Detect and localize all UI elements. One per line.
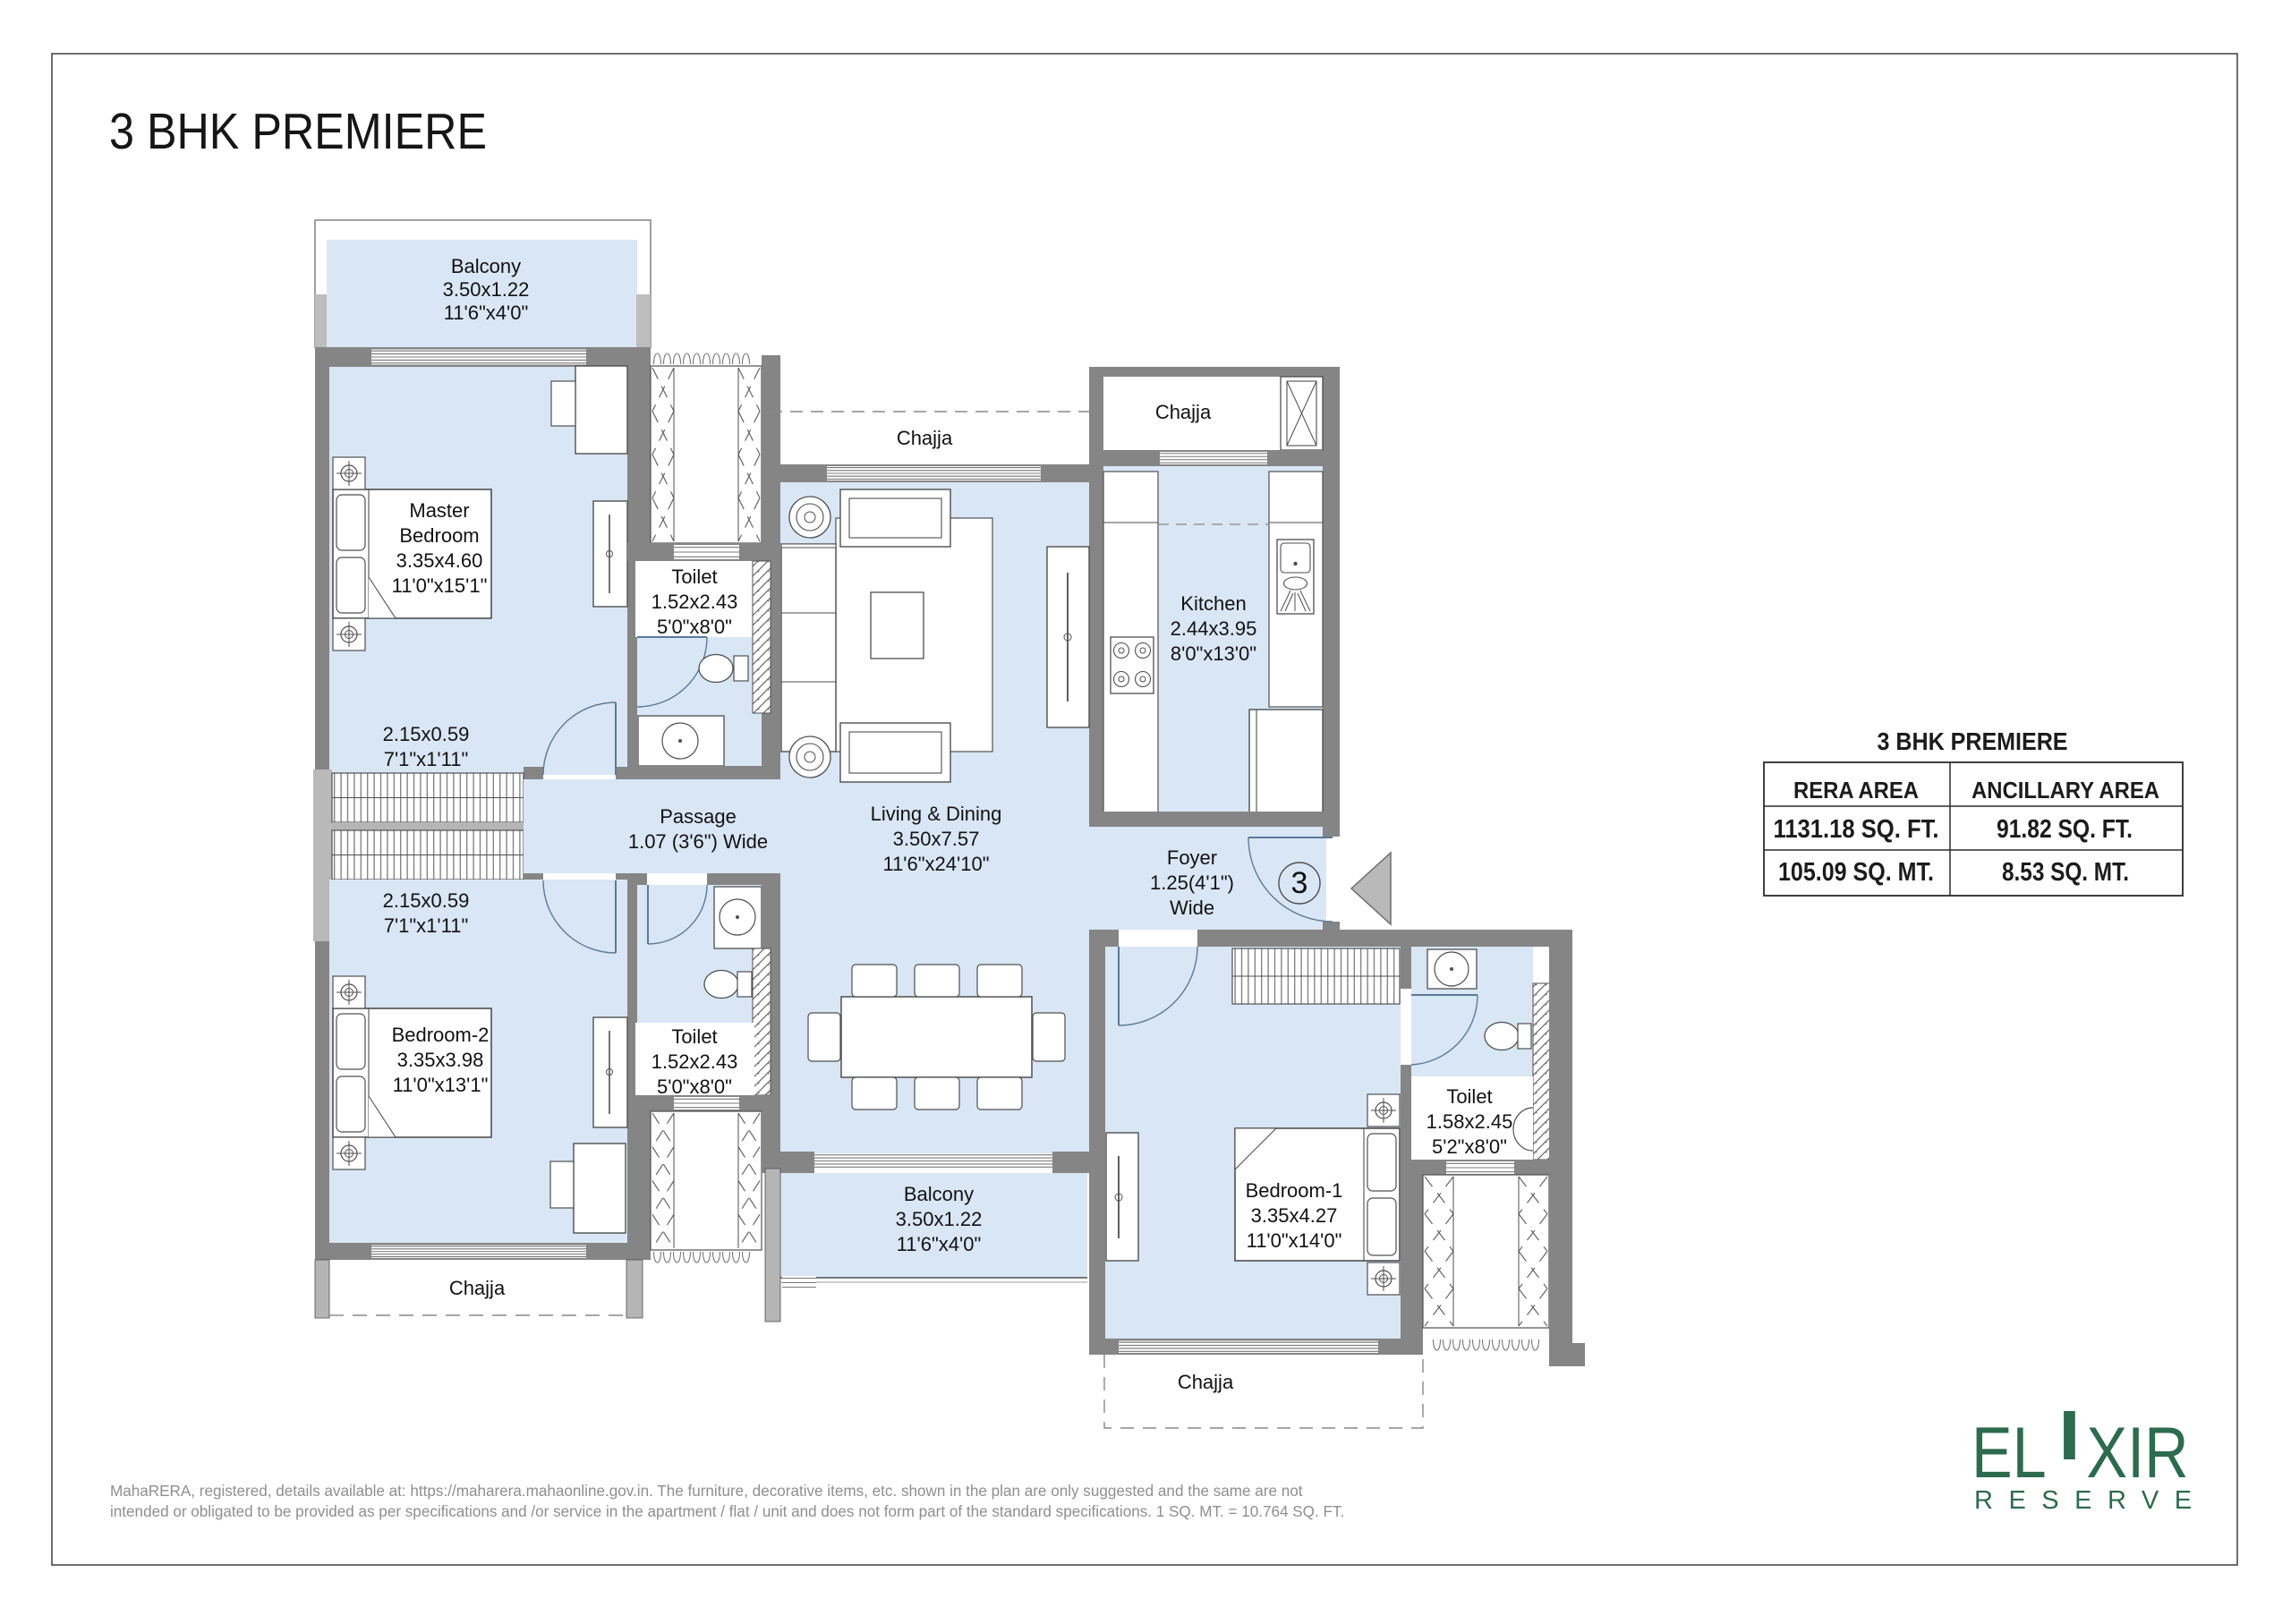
svg-text:RERA AREA: RERA AREA — [1793, 777, 1919, 803]
svg-text:1.52x2.43: 1.52x2.43 — [652, 1050, 738, 1073]
svg-text:2.44x3.95: 2.44x3.95 — [1171, 617, 1257, 640]
svg-text:5'2"x8'0": 5'2"x8'0" — [1432, 1135, 1507, 1158]
svg-text:Balcony: Balcony — [904, 1183, 974, 1205]
svg-text:5'0"x8'0": 5'0"x8'0" — [657, 1076, 732, 1098]
svg-text:11'0"x13'1": 11'0"x13'1" — [393, 1074, 489, 1096]
svg-text:7'1"x1'11": 7'1"x1'11" — [384, 914, 469, 937]
svg-text:8'0"x13'0": 8'0"x13'0" — [1171, 642, 1256, 665]
svg-text:8.53 SQ. MT.: 8.53 SQ. MT. — [2002, 858, 2129, 887]
svg-text:11'0"x14'0": 11'0"x14'0" — [1247, 1229, 1342, 1252]
svg-text:Chajja: Chajja — [1155, 401, 1212, 423]
svg-text:EL: EL — [1972, 1412, 2047, 1493]
svg-text:2.15x0.59: 2.15x0.59 — [383, 889, 470, 912]
svg-text:Chajja: Chajja — [1178, 1371, 1234, 1393]
svg-text:intended or obligated to be pr: intended or obligated to be provided as … — [110, 1503, 1344, 1520]
svg-text:11'6"x4'0": 11'6"x4'0" — [444, 302, 529, 324]
svg-text:Toilet: Toilet — [671, 1025, 717, 1048]
svg-text:2.15x0.59: 2.15x0.59 — [383, 723, 470, 745]
svg-text:91.82 SQ. FT.: 91.82 SQ. FT. — [1997, 815, 2133, 844]
svg-text:11'6"x24'10": 11'6"x24'10" — [882, 853, 989, 875]
svg-text:3.50x1.22: 3.50x1.22 — [896, 1208, 983, 1230]
svg-text:Foyer: Foyer — [1167, 846, 1217, 869]
svg-text:1.07 (3'6") Wide: 1.07 (3'6") Wide — [628, 830, 768, 853]
svg-text:Kitchen: Kitchen — [1180, 592, 1246, 615]
svg-text:3: 3 — [1291, 866, 1308, 900]
svg-text:Toilet: Toilet — [671, 565, 717, 588]
svg-text:Wide: Wide — [1170, 897, 1214, 919]
svg-text:Bedroom-2: Bedroom-2 — [392, 1024, 490, 1046]
svg-text:3 BHK PREMIERE: 3 BHK PREMIERE — [1878, 727, 2068, 755]
svg-text:11'6"x4'0": 11'6"x4'0" — [897, 1233, 982, 1255]
svg-text:Chajja: Chajja — [449, 1277, 506, 1299]
svg-text:1.25(4'1"): 1.25(4'1") — [1150, 872, 1234, 894]
svg-text:ANCILLARY AREA: ANCILLARY AREA — [1972, 777, 2159, 803]
svg-text:11'0"x15'1": 11'0"x15'1" — [392, 574, 488, 597]
svg-text:Chajja: Chajja — [897, 427, 953, 449]
svg-text:3.50x1.22: 3.50x1.22 — [443, 278, 530, 301]
svg-text:Bedroom: Bedroom — [399, 524, 479, 547]
svg-text:1131.18 SQ. FT.: 1131.18 SQ. FT. — [1774, 815, 1939, 844]
svg-text:XIR: XIR — [2086, 1412, 2188, 1493]
svg-text:3.35x4.60: 3.35x4.60 — [396, 549, 483, 572]
svg-text:3.35x4.27: 3.35x4.27 — [1251, 1204, 1338, 1227]
svg-text:Bedroom-1: Bedroom-1 — [1246, 1179, 1343, 1202]
svg-text:Master: Master — [409, 499, 469, 522]
svg-text:3.50x7.57: 3.50x7.57 — [893, 828, 980, 850]
svg-text:Balcony: Balcony — [451, 255, 521, 277]
svg-text:105.09 SQ. MT.: 105.09 SQ. MT. — [1778, 858, 1934, 887]
svg-text:3 BHK PREMIERE: 3 BHK PREMIERE — [109, 103, 487, 160]
svg-text:Passage: Passage — [660, 805, 737, 828]
svg-text:Living & Dining: Living & Dining — [871, 803, 1002, 825]
svg-text:1.52x2.43: 1.52x2.43 — [652, 591, 738, 613]
svg-text:1.58x2.45: 1.58x2.45 — [1427, 1110, 1513, 1133]
svg-text:7'1"x1'11": 7'1"x1'11" — [384, 748, 469, 770]
svg-text:3.35x3.98: 3.35x3.98 — [397, 1049, 484, 1071]
svg-text:MahaRERA, registered, details: MahaRERA, registered, details available … — [110, 1483, 1303, 1500]
svg-text:5'0"x8'0": 5'0"x8'0" — [657, 616, 732, 638]
svg-text:Toilet: Toilet — [1446, 1085, 1492, 1108]
svg-text:RESERVE: RESERVE — [1974, 1486, 2208, 1515]
